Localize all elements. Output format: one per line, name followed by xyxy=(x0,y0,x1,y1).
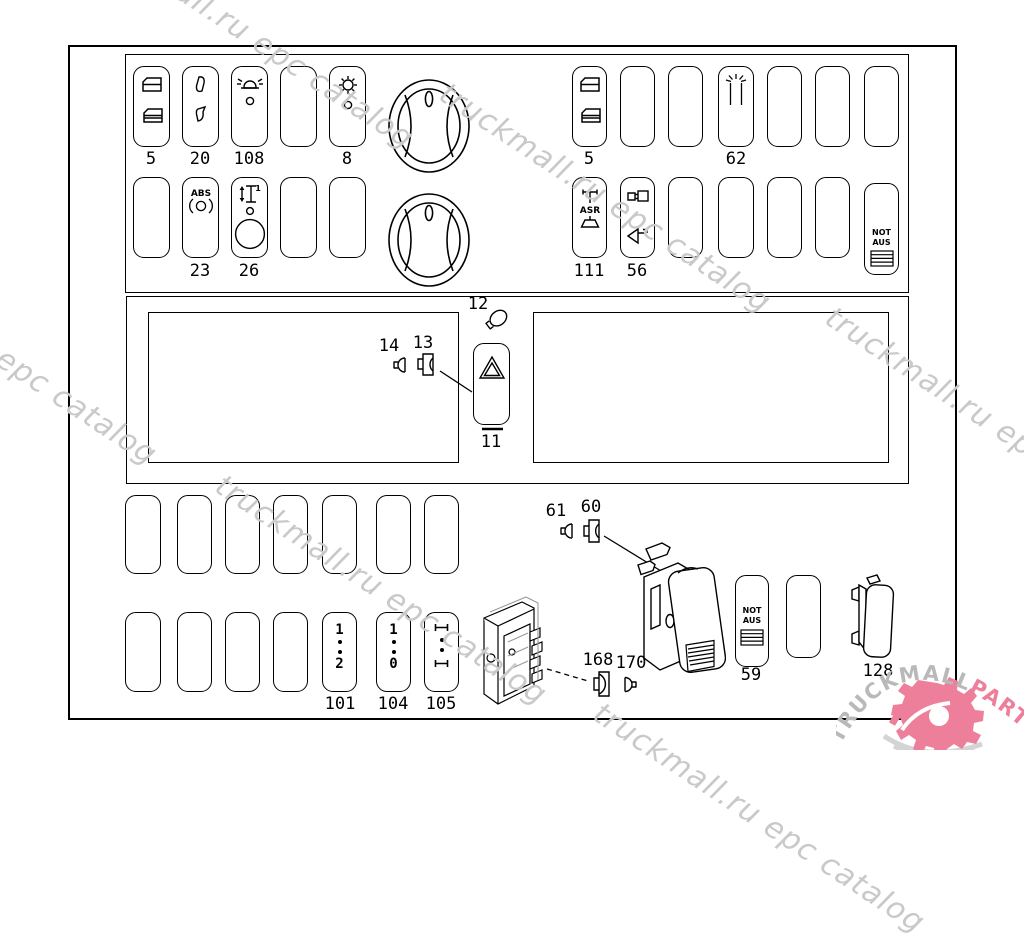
svg-text:ASR: ASR xyxy=(579,206,599,216)
part-number[interactable]: 111 xyxy=(574,261,605,281)
hazard-triangle-icon xyxy=(477,354,507,382)
dot xyxy=(392,640,396,644)
switch-blank xyxy=(767,177,802,258)
rotary-vent-dial[interactable] xyxy=(387,78,471,174)
interior-lamp-icon xyxy=(721,72,751,110)
i-beam-icon xyxy=(433,623,450,632)
part-number[interactable]: 61 xyxy=(546,501,566,521)
svg-text:ABS: ABS xyxy=(190,189,210,199)
switch-blank xyxy=(280,177,317,258)
axle-lift-icon: 1 xyxy=(234,182,266,254)
switch-blank xyxy=(225,612,260,692)
switch-blank xyxy=(125,495,161,574)
switch-blank xyxy=(376,495,411,574)
switch-heater-fan[interactable] xyxy=(329,66,366,147)
part-number[interactable]: 168 xyxy=(583,650,614,670)
part-number[interactable]: 12 xyxy=(468,294,488,314)
not-aus-text: AUS xyxy=(872,238,890,247)
svg-text:1: 1 xyxy=(255,184,261,193)
bulb-socket-icon[interactable] xyxy=(415,351,441,378)
mirror-adjust-icon xyxy=(188,74,214,134)
part-number[interactable]: 20 xyxy=(190,149,210,169)
switch-blank xyxy=(322,495,357,574)
switch-blank xyxy=(177,495,212,574)
part-number[interactable]: 5 xyxy=(584,149,594,169)
switch-blank xyxy=(668,66,703,147)
connector-block-3d[interactable] xyxy=(474,596,566,718)
switch-blank xyxy=(280,66,317,147)
asr-icon: ASR xyxy=(575,185,605,241)
switch-mirror-adjust[interactable] xyxy=(182,66,219,147)
switch-emergency-stop[interactable]: NOT AUS xyxy=(735,575,769,667)
switch-blank xyxy=(133,177,170,258)
window-lift-icon xyxy=(139,74,165,134)
switch-window-lift[interactable] xyxy=(572,66,607,147)
switch-gear-1-2[interactable]: 1 2 xyxy=(322,612,357,692)
bulb-icon[interactable] xyxy=(391,355,412,375)
i-beam-icon xyxy=(433,659,450,668)
part-number[interactable]: 59 xyxy=(741,665,761,685)
emergency-stop-hatch-icon xyxy=(870,250,894,267)
part-number[interactable]: 8 xyxy=(342,149,352,169)
switch-asr[interactable]: ASR xyxy=(572,177,607,258)
part-number[interactable]: 14 xyxy=(379,336,399,356)
switch-window-lift[interactable] xyxy=(133,66,170,147)
abs-icon: ABS xyxy=(187,185,215,225)
part-number[interactable]: 104 xyxy=(378,694,409,714)
rotary-vent-dial[interactable] xyxy=(387,192,471,288)
emergency-stop-hatch-icon xyxy=(740,629,764,646)
switch-blank xyxy=(668,177,703,258)
switch-gear-ibeam[interactable] xyxy=(424,612,459,692)
switch-blank xyxy=(273,612,308,692)
dot xyxy=(338,640,342,644)
switch-blank xyxy=(424,495,459,574)
dot xyxy=(440,648,444,652)
switch-emergency-stop[interactable]: NOT AUS xyxy=(864,183,899,275)
truckmall-parts-logo: TRUCKMALLPARTS xyxy=(836,636,1024,750)
switch-horn[interactable] xyxy=(620,177,655,258)
not-aus-text: NOT xyxy=(872,228,891,237)
switch-blank xyxy=(718,177,754,258)
part-number[interactable]: 62 xyxy=(726,149,746,169)
part-number[interactable]: 23 xyxy=(190,261,210,281)
switch-blank xyxy=(225,495,260,574)
switch-beacon[interactable] xyxy=(231,66,268,147)
switch-blank xyxy=(815,66,850,147)
heater-fan-icon xyxy=(333,74,363,116)
part-number[interactable]: 11 xyxy=(481,432,501,452)
dot xyxy=(338,650,342,654)
gear-position-bottom: 0 xyxy=(389,657,397,671)
switch-blank xyxy=(620,66,655,147)
switch-interior-lamp[interactable] xyxy=(718,66,754,147)
bulb-socket-icon[interactable] xyxy=(581,517,607,545)
switch-blank xyxy=(864,66,899,147)
gear-position-top: 1 xyxy=(389,623,397,637)
gear-position-bottom: 2 xyxy=(335,657,343,671)
switch-blank xyxy=(329,177,366,258)
switch-blank xyxy=(125,612,161,692)
switch-blank xyxy=(767,66,802,147)
part-number[interactable]: 56 xyxy=(627,261,647,281)
switch-blank xyxy=(273,495,308,574)
dot xyxy=(440,638,444,642)
switch-blank xyxy=(786,575,821,658)
part-number[interactable]: 170 xyxy=(616,653,647,673)
switch-blank xyxy=(177,612,212,692)
switch-hazard[interactable] xyxy=(473,343,510,425)
not-aus-text: NOT xyxy=(743,606,762,615)
not-aus-text: AUS xyxy=(743,616,761,625)
parts-diagram-canvas: ABS 1 xyxy=(0,0,1024,750)
part-number[interactable]: 60 xyxy=(581,497,601,517)
part-number[interactable]: 105 xyxy=(426,694,457,714)
part-number[interactable]: 5 xyxy=(146,149,156,169)
dot xyxy=(392,650,396,654)
part-number[interactable]: 13 xyxy=(413,333,433,353)
horn-coupling-icon xyxy=(624,188,652,248)
part-number[interactable]: 108 xyxy=(234,149,265,169)
switch-axle-lift[interactable]: 1 xyxy=(231,177,268,258)
bulb-icon[interactable] xyxy=(558,521,579,541)
switch-abs[interactable]: ABS xyxy=(182,177,219,258)
switch-gear-1-0[interactable]: 1 0 xyxy=(376,612,411,692)
part-number[interactable]: 26 xyxy=(239,261,259,281)
switch-blank xyxy=(815,177,850,258)
window-lift-icon xyxy=(577,74,603,134)
gear-position-top: 1 xyxy=(335,623,343,637)
beacon-icon xyxy=(235,74,265,110)
part-number[interactable]: 101 xyxy=(325,694,356,714)
